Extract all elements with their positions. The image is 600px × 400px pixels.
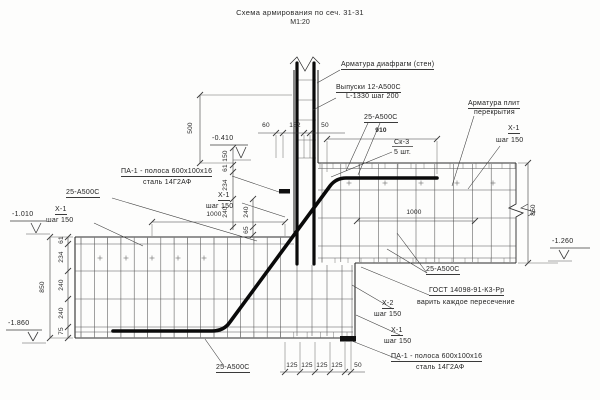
callout-bar-25a500c-bottom: 25-А500С — [216, 364, 250, 373]
line — [205, 339, 224, 366]
callout-dowels-line1: Выпуски 12-А500С — [336, 84, 401, 93]
callout-x1-bottom-right-step: шаг 150 — [384, 338, 411, 345]
callout-x1-top-right-step: шаг 150 — [496, 137, 523, 144]
title-block: Схема армирования по сеч. 31-31 М1:20 — [0, 8, 600, 26]
dim-wall-61: 61 — [223, 164, 230, 172]
line — [564, 250, 569, 259]
callout-x2-right: Х-2 — [382, 300, 394, 309]
polyline — [509, 163, 523, 263]
line — [28, 332, 33, 341]
callout-pa1-right-line1: ПА-1 - полоса 600х100х16 — [391, 353, 482, 362]
line — [559, 250, 564, 259]
dim-chain-75: 75 — [59, 327, 66, 335]
line — [94, 223, 143, 246]
line — [236, 147, 241, 158]
line — [36, 223, 41, 233]
line — [112, 198, 257, 241]
dim-850-right: 850 — [531, 204, 538, 215]
dim-wall2-65: 65 — [244, 226, 251, 234]
dim-chain-234: 234 — [59, 251, 66, 262]
dim-125-d: 125 — [331, 363, 342, 370]
callout-x1-mid: Х-1 — [218, 192, 230, 201]
dim-125-c: 125 — [316, 363, 327, 370]
dim-chain-240a: 240 — [59, 279, 66, 290]
dim-182: 182 — [289, 123, 300, 130]
line — [387, 249, 427, 273]
callout-x1-left: Х-1 — [55, 206, 67, 215]
drawing-linework — [0, 0, 600, 400]
callout-x1-mid-step: шаг 150 — [206, 203, 233, 210]
callout-pa1-left-line1: ПА-1 - полоса 600х100х16 — [121, 168, 212, 177]
callout-bar-25a500c-left: 25-А500С — [66, 189, 100, 198]
steel-plate — [279, 189, 290, 194]
line — [232, 176, 279, 192]
drawing-title: Схема армирования по сеч. 31-31 — [0, 8, 600, 17]
line — [313, 98, 336, 110]
dim-1000-right: 1000 — [406, 210, 421, 217]
dim-125-b: 125 — [301, 363, 312, 370]
drawing-scale: М1:20 — [0, 19, 600, 26]
steel-plate — [340, 336, 356, 342]
callout-x1-bottom-right: Х-1 — [391, 327, 403, 336]
callout-sk3-qty: 5 шт. — [394, 149, 411, 156]
callout-bar-25a500c-top: 25-А500С — [364, 114, 398, 123]
dim-60: 60 — [262, 123, 270, 130]
dim-wall-150: 150 — [223, 150, 230, 161]
dim-50: 50 — [321, 123, 329, 130]
dim-850-left: 850 — [40, 281, 47, 292]
line — [33, 332, 38, 341]
line — [317, 70, 340, 83]
dim-1000-left: 1000 — [206, 212, 221, 219]
line — [452, 116, 474, 186]
dim-wall-240: 240 — [223, 206, 230, 217]
line — [397, 233, 427, 273]
dim-chain-61: 61 — [59, 236, 66, 244]
callout-slab-rebar-line1: Арматура плит — [468, 100, 520, 109]
line — [361, 267, 429, 295]
callout-x2-right-step: шаг 150 — [374, 311, 401, 318]
callout-x1-top-right: Х-1 — [508, 125, 520, 134]
dim-chain-240b: 240 — [59, 307, 66, 318]
callout-pa1-left-line2: сталь 14Г2АФ — [143, 179, 191, 186]
callout-bar-25a500c-right: 25-А500С — [426, 266, 460, 275]
line — [241, 147, 246, 158]
dim-50-bottom: 50 — [354, 363, 362, 370]
dim-125-a: 125 — [286, 363, 297, 370]
line — [468, 146, 500, 189]
reinforcement-drawing: Схема армирования по сеч. 31-31 М1:20 Ар… — [0, 0, 600, 400]
callout-gost-weld-line2: варить каждое пересечение — [417, 299, 515, 306]
line — [346, 123, 368, 171]
callout-gost-weld-line1: ГОСТ 14098-91-К3-Рр — [429, 287, 504, 296]
dim-500: 500 — [188, 122, 195, 133]
callout-dowels-line2: L-1330 шаг 200 — [346, 93, 399, 100]
callout-sk3-mark: Ск-3 — [394, 139, 409, 146]
callout-wall-rebar: Арматура диафрагм (стен) — [341, 61, 434, 70]
elevation-minus-1010: -1.010 — [12, 211, 33, 218]
dim-wall-234: 234 — [223, 179, 230, 190]
line — [31, 223, 36, 233]
dim-wall2-240: 240 — [244, 206, 251, 217]
line — [331, 152, 392, 177]
callout-x1-left-step: шаг 150 — [46, 217, 73, 224]
elevation-minus-1260: -1.260 — [552, 238, 573, 245]
callout-pa1-right-line2: сталь 14Г2АФ — [416, 364, 464, 371]
elevation-minus-1860: -1.860 — [8, 320, 29, 327]
dim-910: 910 — [375, 128, 386, 135]
callout-slab-rebar-line2: перекрытия — [474, 109, 515, 116]
elevation-minus-0410: -0.410 — [212, 135, 233, 142]
